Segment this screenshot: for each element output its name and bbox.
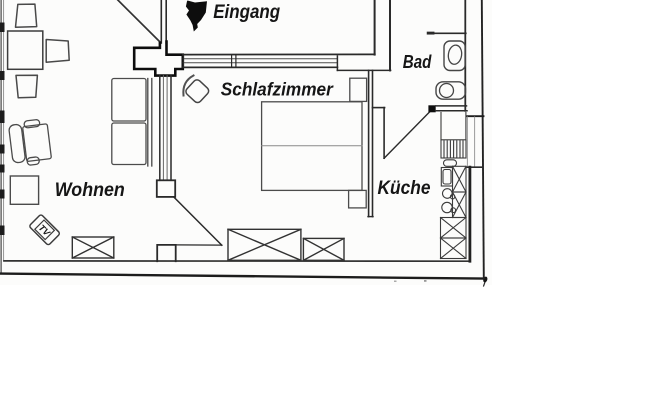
- svg-text:Küche: Küche: [378, 178, 431, 199]
- svg-text:Bad: Bad: [403, 51, 432, 72]
- svg-text:Schlafzimmer: Schlafzimmer: [221, 78, 335, 99]
- svg-text:Eingang: Eingang: [213, 2, 280, 23]
- svg-text:Wohnen: Wohnen: [55, 179, 125, 201]
